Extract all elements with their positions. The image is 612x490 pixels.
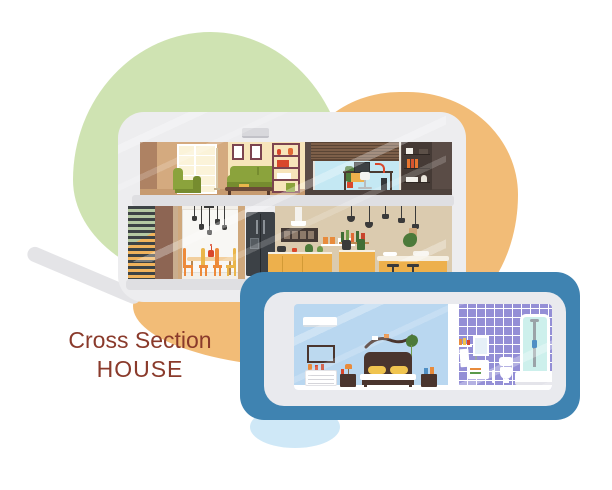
tv (307, 345, 335, 363)
title: Cross Section HOUSE (42, 326, 238, 384)
paper-stack (406, 148, 413, 154)
books (277, 160, 289, 167)
storage-box (419, 149, 428, 154)
toilet-brush (492, 370, 495, 383)
red-decor (341, 369, 344, 374)
mirror (473, 336, 489, 356)
wall-picture (232, 144, 244, 160)
desk-lamp (375, 163, 385, 173)
perfume-bottles (308, 364, 312, 370)
top-floor (140, 142, 452, 195)
dining-chair (183, 248, 193, 276)
range-hood (291, 207, 306, 229)
table-lamp (345, 364, 352, 374)
bathroom (458, 304, 552, 390)
air-conditioner (242, 128, 269, 138)
illustration-canvas: Cross Section HOUSE (0, 0, 612, 490)
dishes (413, 251, 429, 256)
bed-base (362, 380, 414, 385)
shower-cabin (518, 314, 552, 388)
coffee-maker (342, 240, 351, 250)
title-line-1: Cross Section (42, 326, 238, 355)
nightstand-left (340, 374, 356, 387)
shower-control (532, 340, 537, 348)
floor-lamp (214, 148, 220, 190)
room-divider (448, 304, 458, 390)
stair-wall (155, 206, 173, 279)
ice-dispenser (250, 238, 259, 249)
window-blinds (311, 142, 399, 161)
binder (415, 159, 418, 168)
decor-items (430, 367, 434, 374)
books-flat (406, 177, 418, 182)
toiletry-shelf (458, 337, 472, 347)
tan-column (238, 206, 245, 279)
green-box (286, 183, 295, 192)
hanging-plant (403, 228, 419, 248)
toaster (277, 246, 286, 252)
office-bookcase (402, 142, 432, 190)
title-line-2: HOUSE (42, 355, 238, 384)
decor-items (424, 368, 428, 374)
vanity-sink (467, 360, 489, 379)
coffee-table (225, 187, 273, 195)
tablet-cross-section (240, 272, 580, 420)
armchair (173, 168, 205, 195)
toilet (497, 357, 515, 383)
herb-plant (305, 244, 313, 252)
pillow (368, 366, 386, 374)
paper-stack (277, 173, 291, 179)
office-chair (356, 172, 374, 190)
perfume-bottles (321, 364, 324, 370)
pendant-lights (345, 206, 389, 232)
tan-column (178, 206, 182, 279)
nightstand-right (421, 374, 437, 387)
shower-base (515, 372, 552, 385)
perfume-bottles (315, 365, 318, 370)
red-cup (292, 248, 297, 252)
home-office (305, 142, 452, 195)
dishes (383, 252, 397, 256)
herb-plant (317, 246, 323, 252)
dining-chair (198, 248, 208, 276)
shelving-unit (272, 143, 300, 193)
living-wall-dark-strip (140, 142, 157, 195)
dresser (305, 370, 337, 386)
bookend (421, 175, 427, 182)
desk-plant (345, 166, 350, 171)
red-vase (288, 148, 293, 155)
staircase-steps (128, 206, 155, 279)
dining-chair (212, 248, 222, 276)
ground-floor (128, 206, 452, 279)
wall-picture (250, 144, 262, 160)
binder (411, 159, 414, 168)
pendant-lights (190, 206, 230, 240)
tablet-screen (294, 304, 552, 390)
dining-chair (226, 248, 236, 276)
shower-head (530, 319, 539, 322)
folded-towels (470, 368, 481, 376)
red-vase (277, 149, 281, 155)
bed (358, 352, 418, 387)
wall-shelf-dark (281, 228, 318, 242)
kitchen (275, 206, 452, 279)
juicer (357, 239, 365, 250)
floor-slab (132, 195, 454, 206)
pc-tower (381, 178, 387, 190)
air-conditioner (303, 317, 337, 327)
living-room (140, 142, 305, 195)
binder (407, 159, 410, 168)
dining-room (178, 206, 245, 279)
pillow (390, 366, 408, 374)
bedroom (294, 304, 448, 390)
